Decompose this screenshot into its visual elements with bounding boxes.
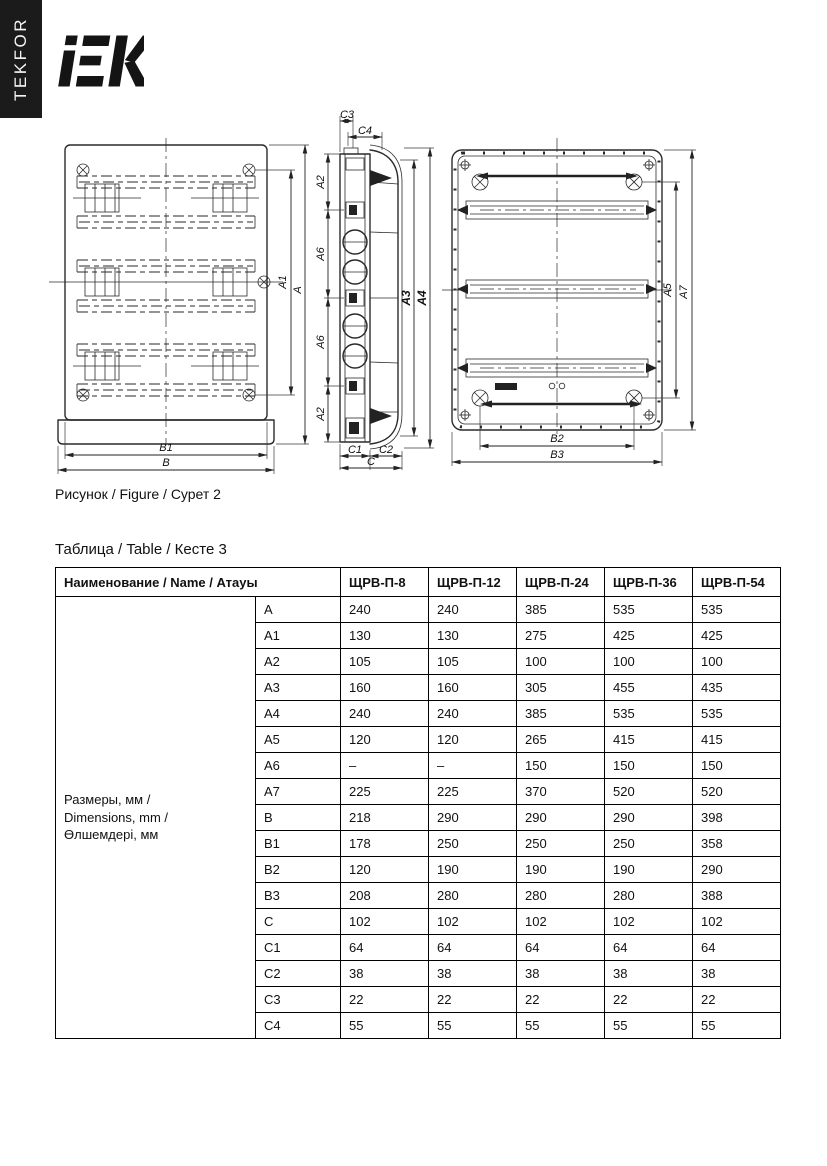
value-cell: 425: [693, 623, 781, 649]
value-cell: 535: [693, 701, 781, 727]
value-cell: 290: [693, 857, 781, 883]
value-cell: 240: [341, 597, 429, 623]
param-cell: A7: [256, 779, 341, 805]
value-cell: 290: [429, 805, 517, 831]
param-cell: A6: [256, 753, 341, 779]
dim-label-b: B: [162, 457, 169, 469]
value-cell: 38: [693, 961, 781, 987]
dim-label-a6-lower: A6: [315, 334, 327, 349]
dim-label-c: C: [367, 456, 375, 468]
value-cell: 190: [605, 857, 693, 883]
param-cell: B3: [256, 883, 341, 909]
dim-label-a7: A7: [678, 284, 690, 299]
value-cell: 218: [341, 805, 429, 831]
param-cell: C: [256, 909, 341, 935]
dim-label-a6-upper: A6: [315, 246, 327, 261]
dim-label-c1: C1: [348, 444, 362, 456]
figure-caption: Рисунок / Figure / Сурет 2: [55, 486, 221, 502]
front-dimensions: A1 A B1 B: [58, 145, 309, 474]
value-cell: 290: [605, 805, 693, 831]
value-cell: 105: [341, 649, 429, 675]
catalog-page: TEKFOR IEK: [0, 0, 827, 1166]
value-cell: 250: [605, 831, 693, 857]
value-cell: 150: [517, 753, 605, 779]
value-cell: 102: [517, 909, 605, 935]
value-cell: 370: [517, 779, 605, 805]
value-cell: 100: [605, 649, 693, 675]
value-cell: 100: [517, 649, 605, 675]
header-model-0: ЩРВ-П-8: [341, 568, 429, 597]
value-cell: 435: [693, 675, 781, 701]
value-cell: 102: [341, 909, 429, 935]
dim-label-c4: C4: [358, 125, 372, 137]
dim-label-a4: A4: [415, 290, 429, 307]
value-cell: 102: [429, 909, 517, 935]
value-cell: 64: [693, 935, 781, 961]
value-cell: 38: [605, 961, 693, 987]
value-cell: 190: [429, 857, 517, 883]
value-cell: 100: [693, 649, 781, 675]
value-cell: 398: [693, 805, 781, 831]
value-cell: –: [341, 753, 429, 779]
value-cell: 455: [605, 675, 693, 701]
value-cell: 415: [693, 727, 781, 753]
value-cell: 358: [693, 831, 781, 857]
value-cell: 64: [517, 935, 605, 961]
table-title: Таблица / Table / Кесте 3: [55, 541, 227, 558]
value-cell: 280: [605, 883, 693, 909]
value-cell: 55: [429, 1013, 517, 1039]
side-cover-profile: [370, 150, 398, 444]
value-cell: 240: [341, 701, 429, 727]
value-cell: 275: [517, 623, 605, 649]
param-cell: A2: [256, 649, 341, 675]
figure-front-view: A1 A B1 B: [45, 140, 310, 475]
value-cell: 415: [605, 727, 693, 753]
value-cell: 55: [341, 1013, 429, 1039]
value-cell: 130: [341, 623, 429, 649]
value-cell: 178: [341, 831, 429, 857]
value-cell: 64: [605, 935, 693, 961]
side-right-dimensions: A3 A4: [399, 148, 434, 448]
value-cell: 535: [605, 701, 693, 727]
dim-label-c3: C3: [340, 109, 355, 121]
value-cell: 160: [341, 675, 429, 701]
value-cell: 102: [605, 909, 693, 935]
param-cell: B1: [256, 831, 341, 857]
value-cell: 38: [429, 961, 517, 987]
param-cell: C3: [256, 987, 341, 1013]
param-cell: B: [256, 805, 341, 831]
param-cell: A1: [256, 623, 341, 649]
param-cell: B2: [256, 857, 341, 883]
value-cell: 385: [517, 597, 605, 623]
value-cell: 280: [429, 883, 517, 909]
header-model-4: ЩРВ-П-54: [693, 568, 781, 597]
value-cell: 240: [429, 701, 517, 727]
value-cell: 305: [517, 675, 605, 701]
value-cell: 535: [605, 597, 693, 623]
value-cell: 120: [429, 727, 517, 753]
param-cell: A: [256, 597, 341, 623]
value-cell: 55: [605, 1013, 693, 1039]
brand-sidebar: TEKFOR: [0, 0, 42, 118]
value-cell: 388: [693, 883, 781, 909]
value-cell: 38: [341, 961, 429, 987]
value-cell: 38: [517, 961, 605, 987]
value-cell: 190: [517, 857, 605, 883]
dim-label-b3: B3: [550, 449, 564, 461]
value-cell: 385: [517, 701, 605, 727]
value-cell: 22: [341, 987, 429, 1013]
value-cell: 120: [341, 857, 429, 883]
value-cell: 55: [517, 1013, 605, 1039]
value-cell: 22: [693, 987, 781, 1013]
param-cell: C4: [256, 1013, 341, 1039]
dim-label-b2: B2: [550, 433, 563, 445]
value-cell: 520: [693, 779, 781, 805]
value-cell: 425: [605, 623, 693, 649]
value-cell: 250: [517, 831, 605, 857]
header-model-3: ЩРВ-П-36: [605, 568, 693, 597]
figure-side-view: A2 A6 A6 A2 A3 A4 C3 C4: [318, 112, 436, 472]
param-cell: C2: [256, 961, 341, 987]
value-cell: 265: [517, 727, 605, 753]
value-cell: 120: [341, 727, 429, 753]
group-label-cell: Размеры, мм / Dimensions, mm / Өлшемдері…: [56, 597, 256, 1039]
value-cell: 240: [429, 597, 517, 623]
table-row: Размеры, мм / Dimensions, mm / Өлшемдері…: [56, 597, 781, 623]
value-cell: 22: [605, 987, 693, 1013]
value-cell: 102: [693, 909, 781, 935]
dim-label-a2-top: A2: [315, 175, 327, 189]
value-cell: 55: [693, 1013, 781, 1039]
dim-label-a: A: [292, 286, 304, 294]
dim-label-a5: A5: [662, 282, 674, 297]
value-cell: 520: [605, 779, 693, 805]
param-cell: A3: [256, 675, 341, 701]
header-model-1: ЩРВ-П-12: [429, 568, 517, 597]
dim-label-c2: C2: [379, 444, 393, 456]
side-bottom-dimensions: C1 C2 C: [340, 444, 402, 470]
dim-label-b1: B1: [159, 442, 172, 454]
mold-mark: [495, 383, 517, 390]
dimensions-table: Наименование / Name / Атауы ЩРВ-П-8 ЩРВ-…: [55, 567, 781, 1039]
value-cell: 150: [605, 753, 693, 779]
value-cell: 535: [693, 597, 781, 623]
table-header-row: Наименование / Name / Атауы ЩРВ-П-8 ЩРВ-…: [56, 568, 781, 597]
value-cell: 22: [517, 987, 605, 1013]
rear-dimensions: A5 A7 B2 B3: [452, 150, 696, 466]
iek-logo: IEK: [56, 33, 144, 89]
tekfor-label: TEKFOR: [11, 17, 31, 101]
value-cell: 22: [429, 987, 517, 1013]
value-cell: 105: [429, 649, 517, 675]
value-cell: 208: [341, 883, 429, 909]
param-cell: A4: [256, 701, 341, 727]
value-cell: 225: [341, 779, 429, 805]
value-cell: 280: [517, 883, 605, 909]
dim-label-a2-bottom: A2: [315, 407, 327, 421]
side-clips: [343, 158, 367, 438]
value-cell: 130: [429, 623, 517, 649]
param-cell: C1: [256, 935, 341, 961]
header-model-2: ЩРВ-П-24: [517, 568, 605, 597]
value-cell: 250: [429, 831, 517, 857]
value-cell: 160: [429, 675, 517, 701]
value-cell: 64: [341, 935, 429, 961]
bottom-mount-slot: [480, 401, 642, 408]
value-cell: –: [429, 753, 517, 779]
value-cell: 290: [517, 805, 605, 831]
value-cell: 64: [429, 935, 517, 961]
corner-screws: [77, 164, 270, 401]
dim-label-a3: A3: [399, 290, 413, 307]
figure-rear-view: A5 A7 B2 B3: [440, 140, 700, 472]
header-name-col: Наименование / Name / Атауы: [56, 568, 341, 597]
dim-label-a1: A1: [277, 275, 289, 289]
param-cell: A5: [256, 727, 341, 753]
value-cell: 225: [429, 779, 517, 805]
value-cell: 150: [693, 753, 781, 779]
